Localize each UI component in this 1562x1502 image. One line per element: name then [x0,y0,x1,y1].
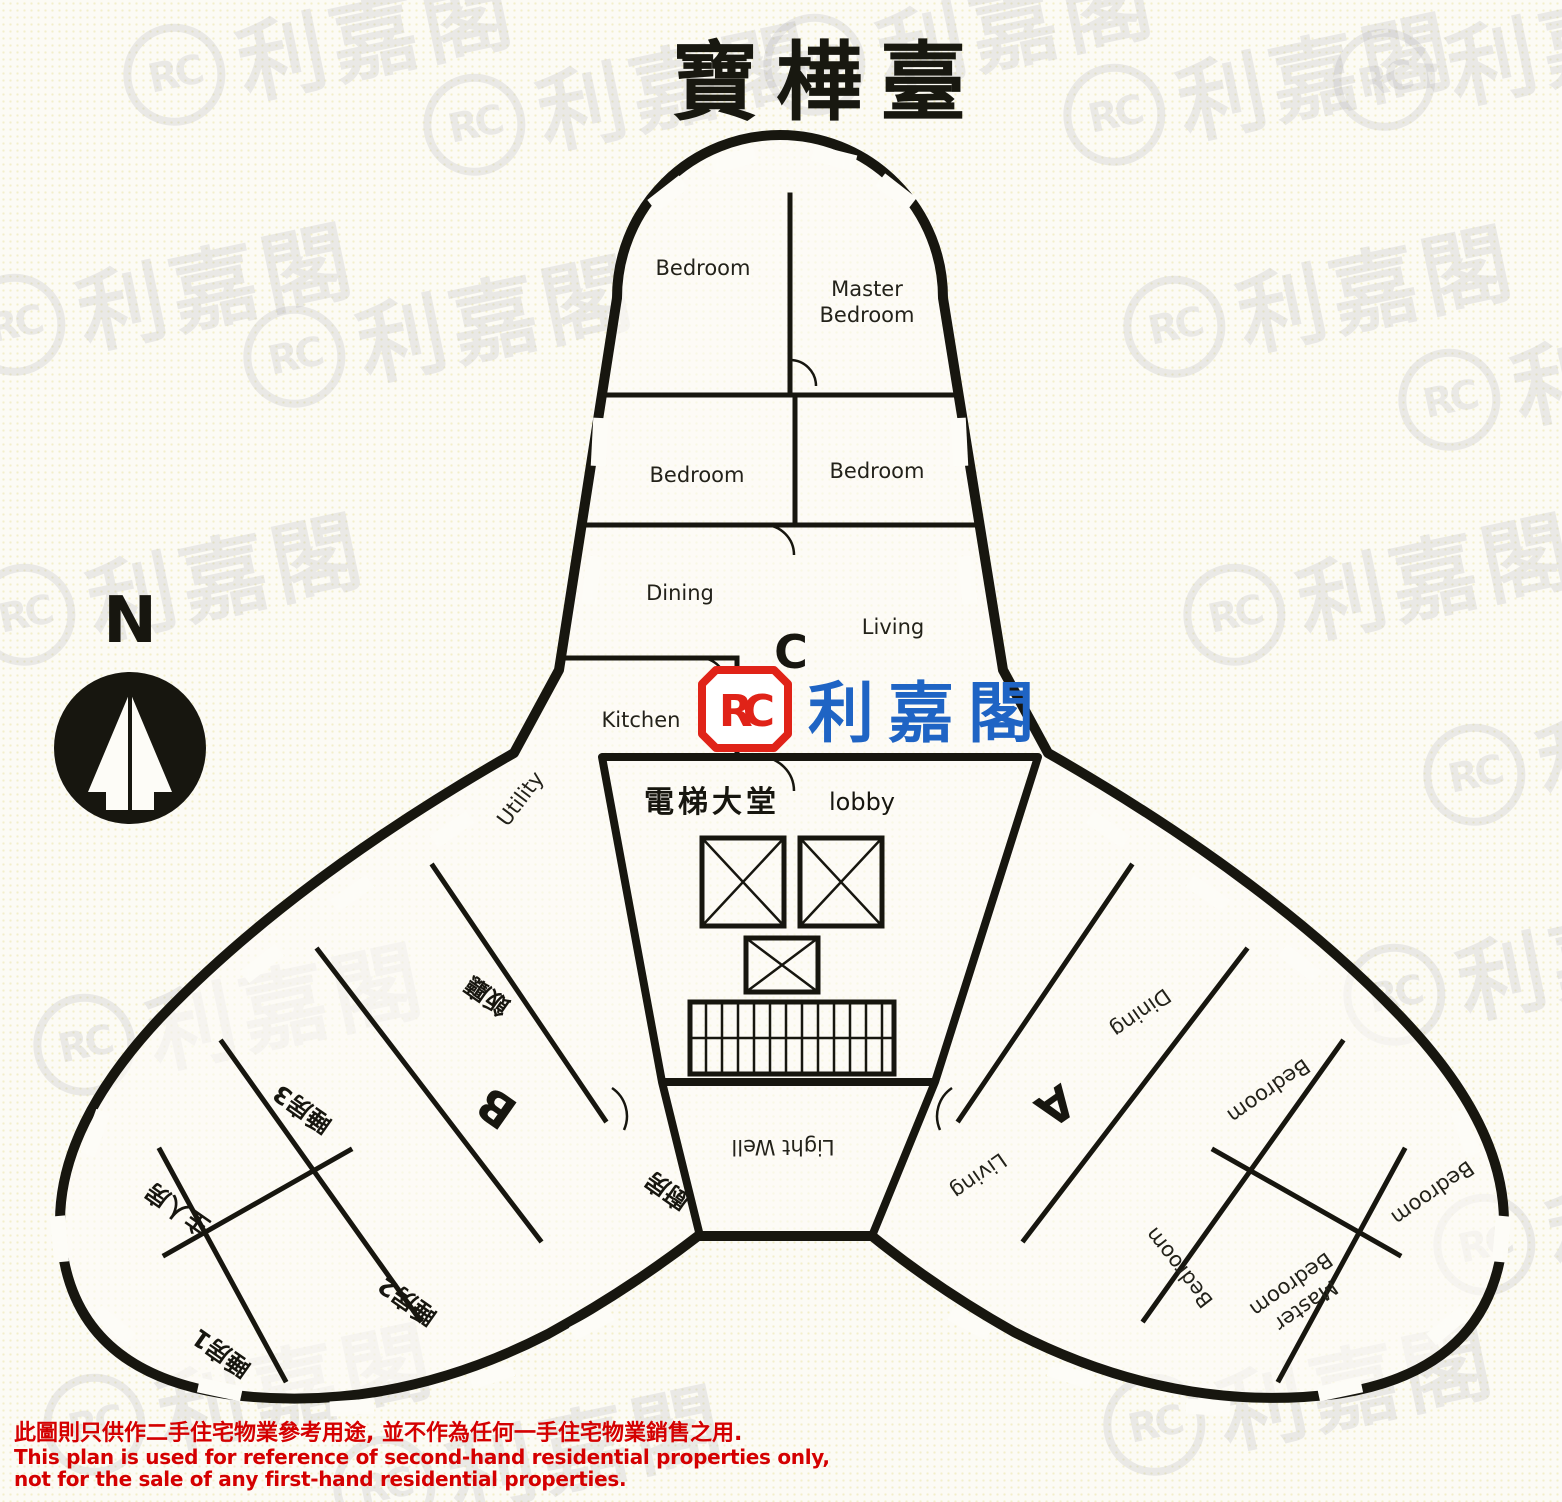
building-outline [60,135,1504,1399]
disclaimer: 此圖則只供作二手住宅物業參考用途, 並不作為任何一手住宅物業銷售之用. This… [14,1420,830,1491]
light-well-label: Light Well [731,1135,834,1159]
room-label: Dining [646,581,714,605]
lobby-label-en: lobby [829,788,895,816]
room-label: Bedroom [656,256,751,280]
logo-monogram: RC [719,686,773,737]
room-label: Living [862,615,924,639]
room-label: Master [831,277,903,301]
room-label: Bedroom [650,463,745,487]
room-label: Kitchen [602,708,681,732]
floor-plan-drawing: 電梯大堂 lobby Light Well Bedroom Master Bed… [0,0,1562,1502]
lobby-label-zh: 電梯大堂 [644,785,780,820]
disclaimer-line-3: not for the sale of any first-hand resid… [14,1467,626,1491]
logo-name: 利嘉閣 [808,675,1048,752]
disclaimer-line-2: This plan is used for reference of secon… [14,1445,830,1469]
building-title: 寶樺臺 [672,32,984,133]
room-label: Bedroom [830,459,925,483]
north-compass: N [54,584,206,824]
ricacorp-logo: RC 利嘉閣 [702,670,1048,752]
floor-plan-page: RC利嘉閣RC利嘉閣RC利嘉閣RC利嘉閣RC利嘉閣RC利嘉閣RC利嘉閣RC利嘉閣… [0,0,1562,1502]
room-label: Bedroom [820,303,915,327]
disclaimer-line-1: 此圖則只供作二手住宅物業參考用途, 並不作為任何一手住宅物業銷售之用. [14,1420,742,1446]
north-label: N [103,584,157,658]
